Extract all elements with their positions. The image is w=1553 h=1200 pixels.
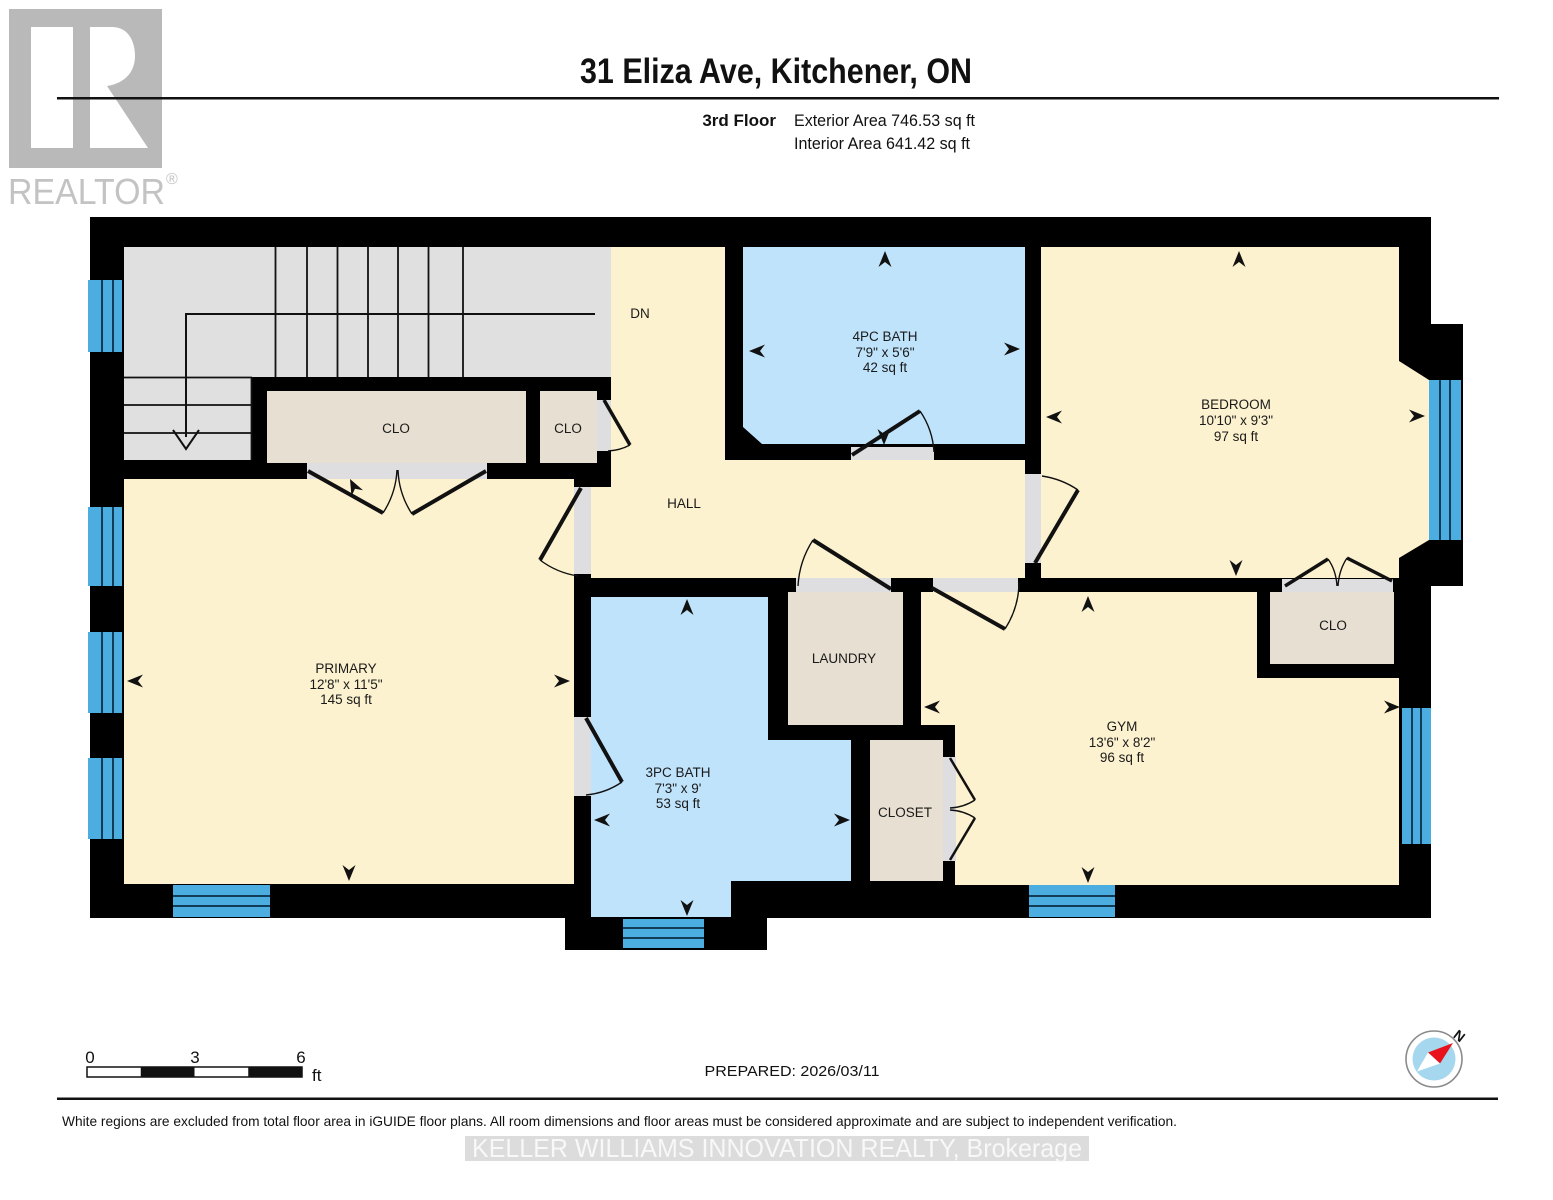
svg-text:®: ® [166,171,178,188]
svg-text:3PC BATH: 3PC BATH [645,765,710,780]
svg-text:42 sq ft: 42 sq ft [863,360,908,375]
svg-text:13'6" x 8'2": 13'6" x 8'2" [1089,735,1156,750]
svg-text:0: 0 [85,1048,94,1067]
svg-text:BEDROOM: BEDROOM [1201,397,1271,412]
svg-text:CLO: CLO [1319,618,1347,633]
svg-text:3rd Floor: 3rd Floor [702,111,776,130]
svg-text:REALTOR: REALTOR [8,171,165,212]
svg-text:96 sq ft: 96 sq ft [1100,750,1145,765]
svg-text:53 sq ft: 53 sq ft [656,796,701,811]
svg-text:Exterior Area 746.53 sq ft: Exterior Area 746.53 sq ft [794,111,975,130]
svg-text:ft: ft [312,1066,322,1085]
svg-text:7'3" x 9': 7'3" x 9' [655,781,702,796]
svg-text:97 sq ft: 97 sq ft [1214,429,1259,444]
svg-text:CLOSET: CLOSET [878,805,932,820]
svg-text:31 Eliza Ave, Kitchener, ON: 31 Eliza Ave, Kitchener, ON [580,52,972,91]
svg-text:White regions are excluded fro: White regions are excluded from total fl… [62,1113,1177,1129]
svg-text:Interior Area 641.42 sq ft: Interior Area 641.42 sq ft [794,134,970,153]
svg-text:LAUNDRY: LAUNDRY [812,651,876,666]
svg-text:10'10" x 9'3": 10'10" x 9'3" [1199,413,1273,428]
svg-text:KELLER WILLIAMS INNOVATION REA: KELLER WILLIAMS INNOVATION REALTY, Broke… [472,1133,1082,1163]
svg-text:HALL: HALL [667,496,701,511]
svg-text:6: 6 [296,1048,305,1067]
svg-text:7'9" x 5'6": 7'9" x 5'6" [855,345,914,360]
svg-text:PRIMARY: PRIMARY [315,661,376,676]
svg-text:CLO: CLO [382,421,410,436]
svg-text:3: 3 [190,1048,199,1067]
svg-text:145 sq ft: 145 sq ft [320,692,372,707]
svg-text:4PC BATH: 4PC BATH [852,329,917,344]
svg-text:CLO: CLO [554,421,582,436]
svg-text:DN: DN [630,306,650,321]
svg-text:12'8" x 11'5": 12'8" x 11'5" [309,677,382,692]
svg-text:GYM: GYM [1107,719,1138,734]
svg-text:PREPARED: 2026/03/11: PREPARED: 2026/03/11 [705,1063,880,1080]
